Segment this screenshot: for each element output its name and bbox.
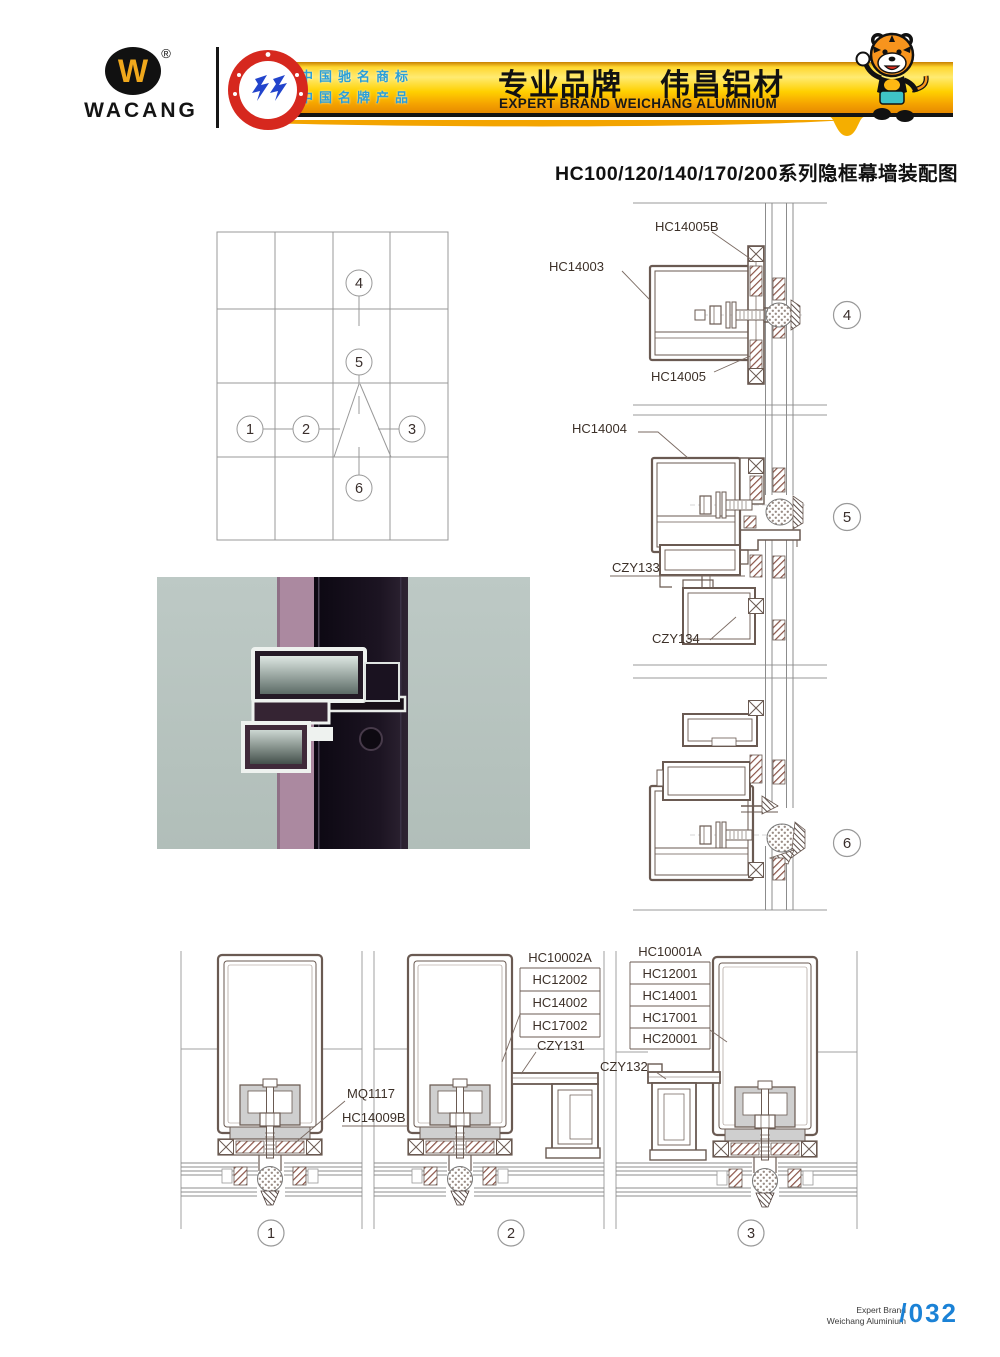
footer-line1: Expert Brand: [827, 1305, 906, 1316]
detail-2-number: 2: [507, 1226, 515, 1242]
label-hc14005b: HC14005B: [655, 219, 719, 234]
detail-4-number: 4: [843, 307, 851, 324]
detail-1-number: 1: [267, 1226, 275, 1242]
label-hc14001: HC14001: [630, 988, 710, 1003]
label-hc14009b: HC14009B: [342, 1110, 406, 1125]
section-callouts-bottom: 1 2 3: [258, 1220, 764, 1246]
callout-2: 2: [302, 422, 310, 438]
detail-1-drawing: [218, 955, 322, 1205]
label-hc14005: HC14005: [651, 369, 706, 384]
callout-5: 5: [355, 355, 363, 371]
elevation-callouts: [237, 270, 425, 501]
czy131-subframe: [512, 1073, 600, 1158]
label-czy132: CZY132: [600, 1059, 648, 1074]
label-hc20001: HC20001: [630, 1031, 710, 1046]
footer-brand-text: Expert Brand Weichang Aluminium: [827, 1305, 906, 1326]
label-hc14002: HC14002: [520, 995, 600, 1010]
callout-1: 1: [246, 422, 254, 438]
section-callouts-right: 4 5 6: [834, 302, 861, 857]
label-hc10002a: HC10002A: [520, 950, 600, 965]
footer-line2: Weichang Aluminium: [827, 1316, 906, 1327]
label-czy131: CZY131: [537, 1038, 585, 1053]
technical-drawings: 1 2 3 4 5 6: [0, 0, 1000, 1357]
callout-3: 3: [408, 422, 416, 438]
detail-5-number: 5: [843, 509, 851, 526]
label-hc14003: HC14003: [549, 259, 604, 274]
callout-4: 4: [355, 276, 363, 292]
detail-4-drawing: [622, 232, 802, 384]
label-hc12001: HC12001: [630, 966, 710, 981]
label-hc17001: HC17001: [630, 1010, 710, 1025]
catalog-page: W ® WACANG 中国驰名商标 中国名牌产品 专业品牌伟昌铝材 EXPERT…: [0, 0, 1000, 1357]
label-hc12002: HC12002: [520, 972, 600, 987]
label-hc14004: HC14004: [572, 421, 627, 436]
detail-6-number: 6: [843, 835, 851, 852]
callout-6: 6: [355, 481, 363, 497]
label-hc17002: HC17002: [520, 1018, 600, 1033]
label-czy134: CZY134: [652, 631, 700, 646]
label-hc10001a: HC10001A: [630, 944, 710, 959]
elevation-grid: [217, 232, 448, 540]
detail-5-drawing: [610, 432, 805, 644]
page-number: /032: [899, 1298, 958, 1329]
czy132-subframe: [648, 1064, 720, 1160]
detail-6-drawing: [650, 701, 805, 881]
label-mq1117: MQ1117: [347, 1086, 395, 1101]
detail-3-number: 3: [747, 1226, 755, 1242]
label-czy133: CZY133: [612, 560, 660, 575]
